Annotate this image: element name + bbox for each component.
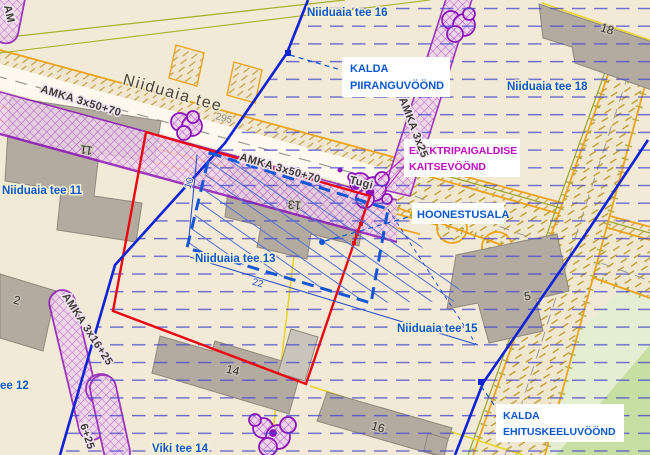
parcel-label-11: Niiduaia tee 11	[2, 185, 83, 197]
plan-map-canvas[interactable]: KALDA PIIRANGUVÖÖND ELEKTRIPAIGALDISE KA…	[0, 0, 650, 455]
driveway-apron	[169, 45, 204, 86]
annotation-text: EHITUSKEELUVÖÖND	[503, 425, 616, 438]
parcel-label-15: Niiduaia tee 15	[397, 323, 478, 335]
parcel-label-16: Niiduaia tee 16	[307, 7, 388, 19]
annotation-kalda-piiranguvoond: KALDA PIIRANGUVÖÖND	[342, 57, 450, 97]
parcel-label-12-partial: ee 12	[0, 380, 29, 392]
annotation-text: PIIRANGUVÖÖND	[350, 79, 444, 92]
plan-map-viewport: KALDA PIIRANGUVÖÖND ELEKTRIPAIGALDISE KA…	[0, 0, 650, 455]
annotation-hoonestusala: HOONESTUSALA	[412, 203, 509, 224]
boundary-node	[478, 379, 484, 385]
annotation-text: KALDA	[503, 410, 540, 422]
building-number-13: 13	[287, 197, 302, 212]
annotation-text: KALDA	[350, 63, 389, 75]
annotation-text: HOONESTUSALA	[417, 209, 509, 221]
annotation-text: KAITSEVÖÖND	[409, 160, 486, 173]
building-number-11: 11	[79, 142, 94, 158]
parcel-label-viki-14: Viki tee 14	[152, 443, 209, 455]
hoonestusala-anchor-dot	[319, 239, 325, 245]
annotation-kalda-ehituskeeluvoond: KALDA EHITUSKEELUVÖÖND	[496, 404, 624, 442]
parcel-label-13: Niiduaia tee 13	[195, 253, 276, 265]
parcel-label-18: Niiduaia tee 18	[507, 81, 588, 93]
